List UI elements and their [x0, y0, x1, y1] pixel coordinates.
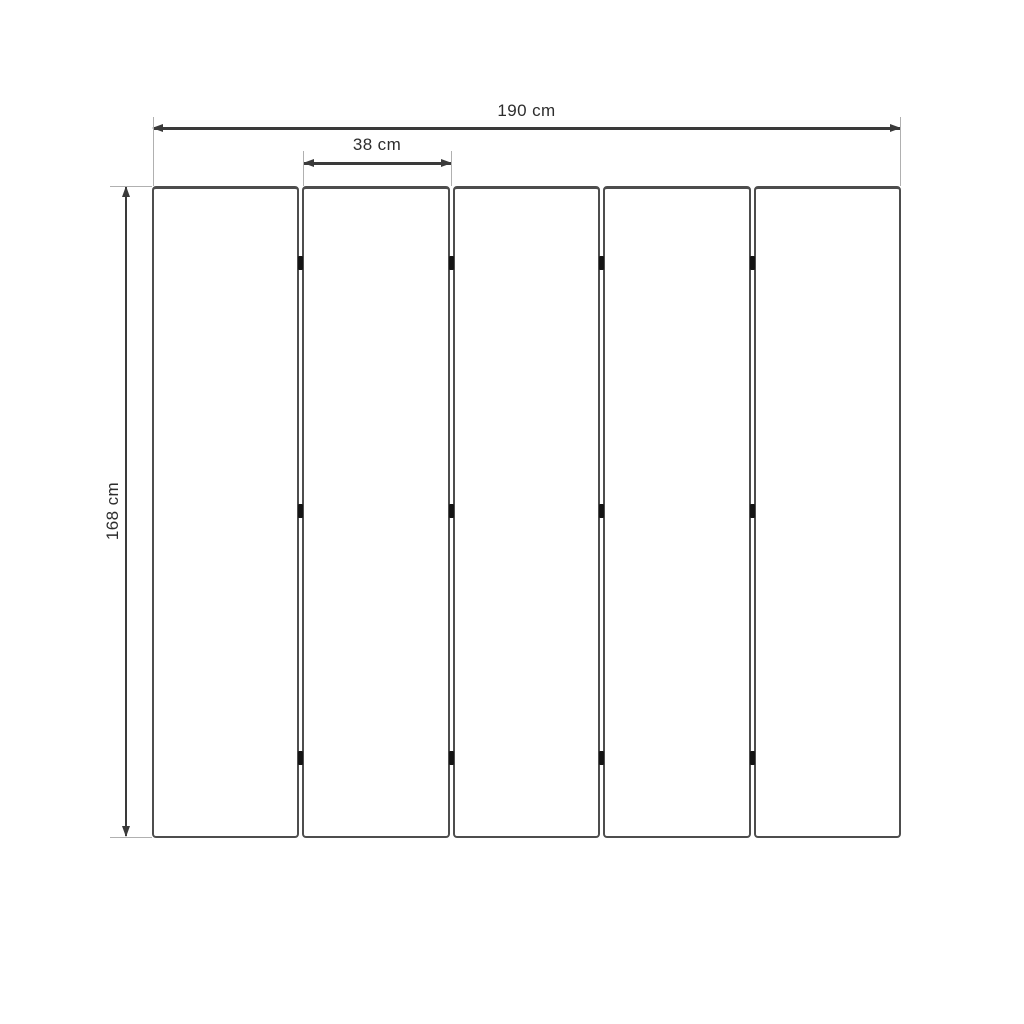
hinge	[298, 256, 303, 270]
hinge	[599, 504, 604, 518]
panel-3	[453, 186, 600, 838]
arrow-down-icon	[122, 826, 130, 837]
hinge	[449, 256, 454, 270]
hinge	[449, 504, 454, 518]
panel-5	[754, 186, 901, 838]
hinge	[599, 751, 604, 765]
arrow-up-icon	[122, 186, 130, 197]
panels-row	[152, 186, 901, 838]
hinge	[449, 751, 454, 765]
extension-line	[110, 837, 152, 838]
hinge	[599, 256, 604, 270]
height-dimension-line	[125, 187, 128, 836]
hinge	[750, 751, 755, 765]
arrow-left-icon	[303, 159, 314, 167]
panel-1	[152, 186, 299, 838]
hinge	[298, 751, 303, 765]
hinge	[750, 504, 755, 518]
height-label: 168 cm	[103, 450, 123, 572]
panel-width-dimension-line	[304, 162, 451, 165]
extension-line	[303, 151, 304, 186]
extension-line	[451, 151, 452, 186]
extension-line	[900, 117, 901, 186]
diagram-canvas: 190 cm 38 cm 168 cm	[0, 0, 1024, 1024]
hinge	[298, 504, 303, 518]
extension-line	[110, 186, 152, 187]
panel-4	[603, 186, 750, 838]
extension-line	[153, 117, 154, 186]
panel-2	[302, 186, 449, 838]
hinge	[750, 256, 755, 270]
panel-width-label: 38 cm	[303, 135, 451, 155]
total-width-label: 190 cm	[153, 101, 900, 121]
total-width-dimension-line	[153, 127, 900, 130]
